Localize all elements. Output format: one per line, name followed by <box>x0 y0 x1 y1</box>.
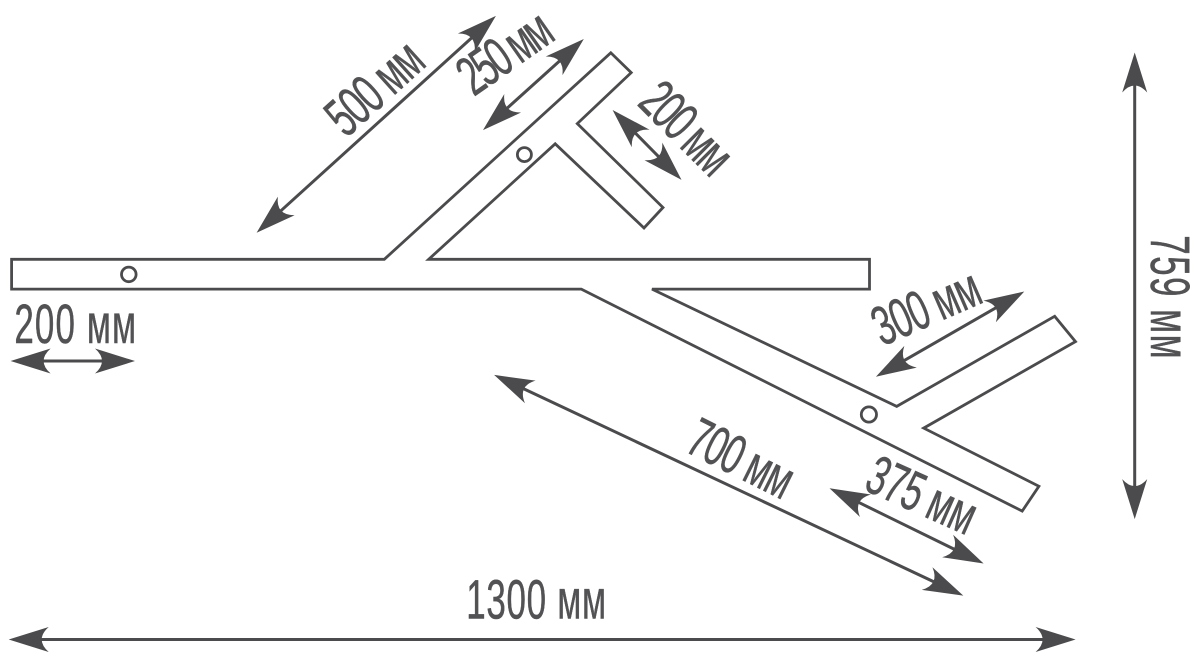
svg-text:1300 мм: 1300 мм <box>466 569 606 631</box>
